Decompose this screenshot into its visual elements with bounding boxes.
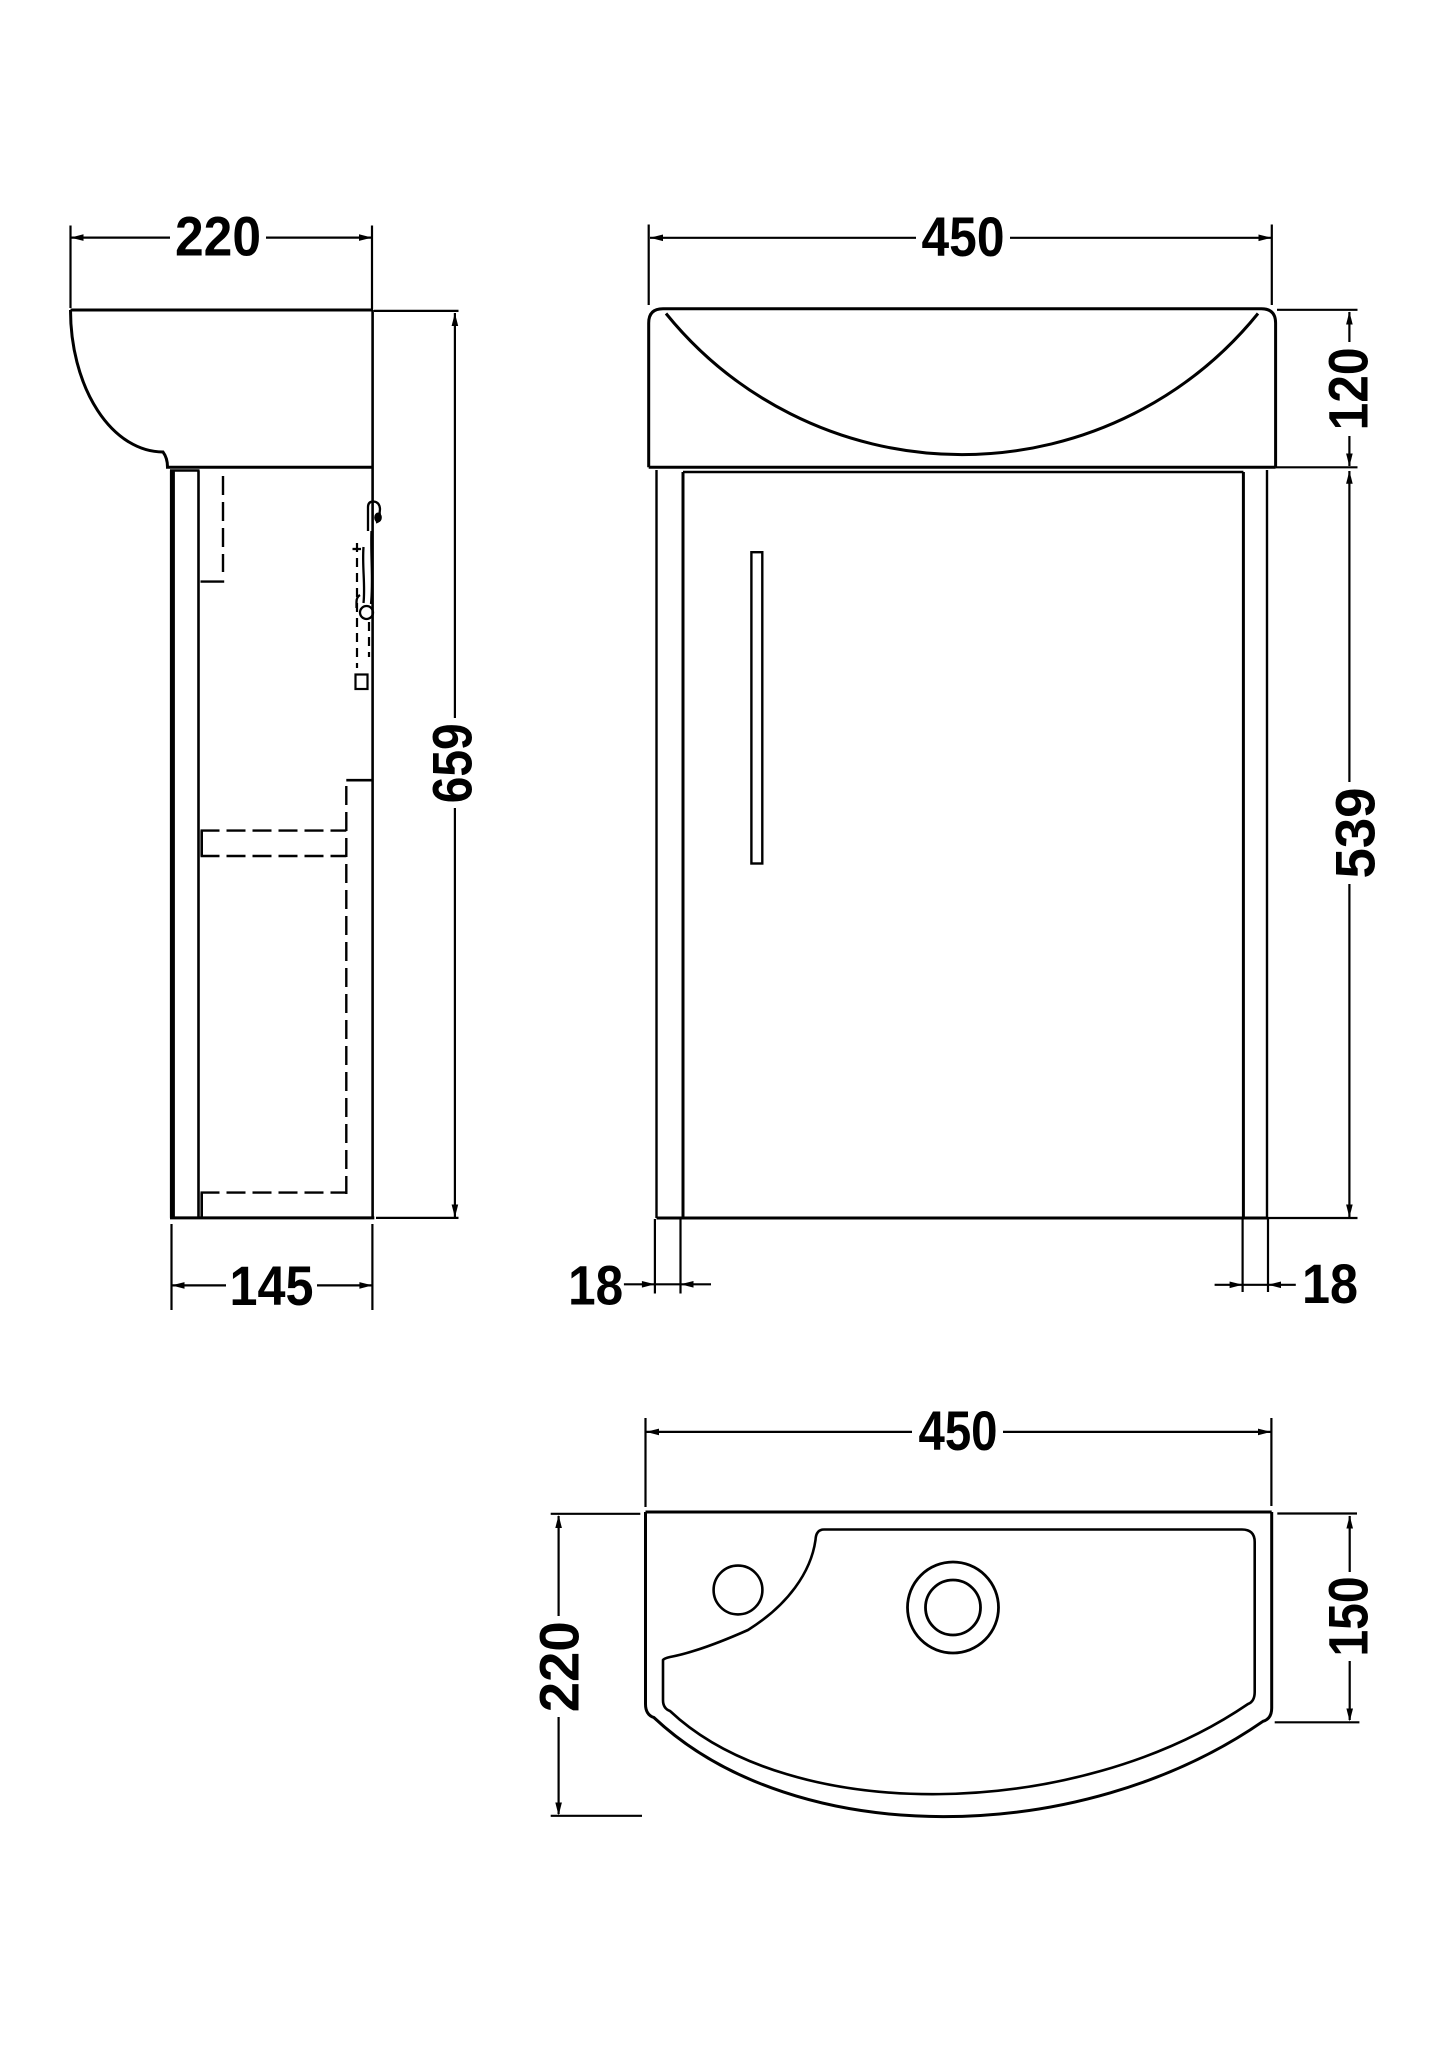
svg-text:150: 150 xyxy=(1316,1577,1379,1657)
svg-text:120: 120 xyxy=(1316,347,1379,430)
svg-text:220: 220 xyxy=(527,1621,590,1712)
svg-text:659: 659 xyxy=(421,723,484,803)
svg-text:539: 539 xyxy=(1324,788,1387,879)
svg-text:220: 220 xyxy=(175,204,261,267)
svg-text:145: 145 xyxy=(230,1254,314,1317)
svg-text:18: 18 xyxy=(1302,1252,1358,1315)
svg-text:450: 450 xyxy=(919,1399,998,1462)
svg-text:450: 450 xyxy=(922,205,1005,268)
svg-text:18: 18 xyxy=(568,1254,623,1317)
